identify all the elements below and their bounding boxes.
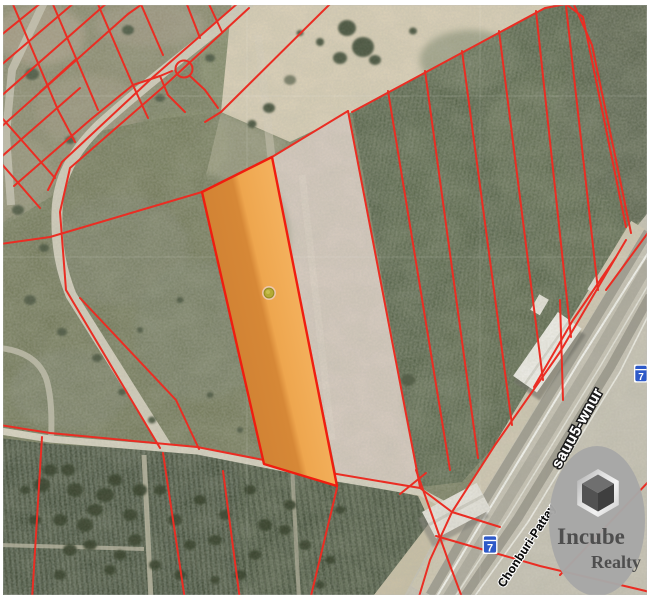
svg-text:7: 7 (487, 543, 493, 555)
svg-text:Realty: Realty (591, 552, 641, 572)
svg-text:Incube: Incube (557, 524, 625, 549)
svg-text:7: 7 (638, 372, 644, 383)
